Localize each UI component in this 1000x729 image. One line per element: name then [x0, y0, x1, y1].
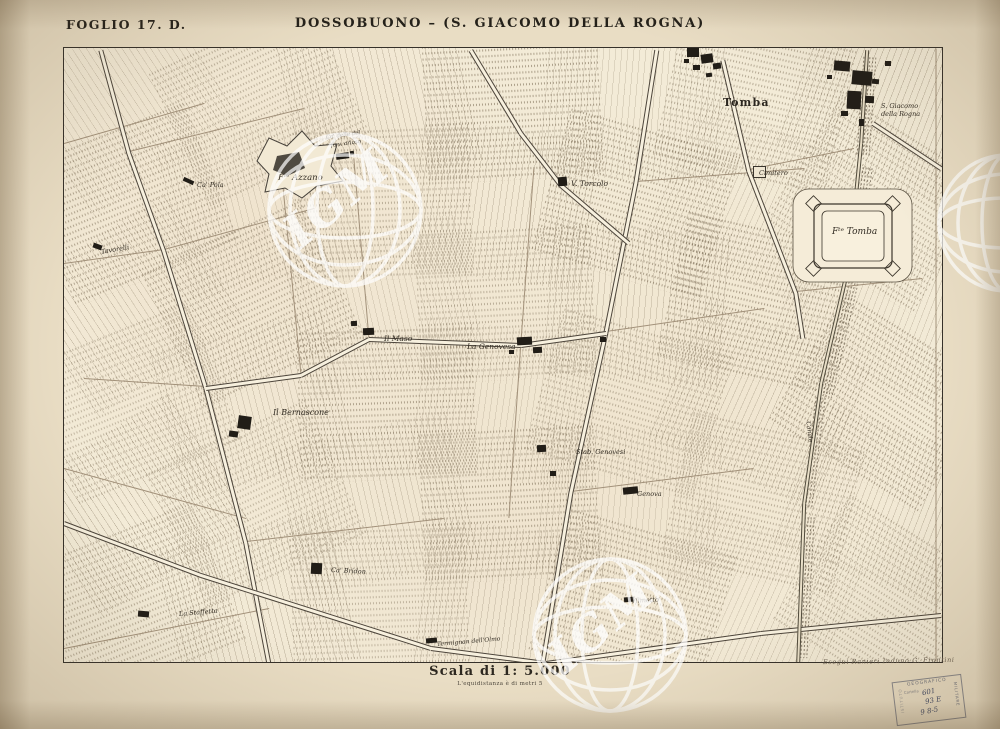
building-footprint [537, 445, 546, 452]
map-label: Il Bernascone [273, 408, 329, 417]
building-footprint [351, 321, 357, 326]
building-footprint [693, 65, 700, 70]
stamp-number-2: 93 E [924, 695, 941, 706]
map-label: Cimitero [759, 169, 788, 177]
building-footprint [834, 60, 851, 71]
map-title: DOSSOBUONO – (S. GIACOMO DELLA ROGNA) [0, 16, 1000, 31]
stamp-right-text: MILITARE [953, 681, 961, 706]
equidistance-note: L'equidistanza è di metri 5 [0, 681, 1000, 687]
building-footprint [426, 638, 437, 644]
building-footprint [851, 70, 872, 86]
building-footprint [600, 337, 606, 342]
map-label: Fᵗᵉ Tomba [832, 227, 877, 237]
building-footprint [350, 151, 355, 156]
scale-label: Scala di 1: 5.000 [0, 664, 1000, 679]
building-footprint [827, 75, 832, 79]
building-footprint [533, 347, 542, 353]
building-footprint [713, 62, 722, 69]
stamp-row-label: Cartella [904, 688, 919, 695]
stamp-number-3: 9 8-5 [920, 705, 939, 716]
building-footprint [847, 91, 862, 110]
map-label: Tomba [723, 96, 770, 109]
building-footprint [859, 119, 864, 126]
building-footprint [687, 48, 699, 57]
map-label: V. Torcolo [571, 179, 608, 188]
building-footprint [237, 415, 252, 430]
building-footprint [229, 430, 239, 437]
building-footprint [865, 96, 874, 103]
building-footprint [558, 177, 568, 187]
building-footprint [684, 59, 689, 63]
map-label: Ca' Pola [197, 181, 224, 189]
building-footprint [700, 53, 713, 64]
archive-stamp: GEOGRAFICO MILITARE ISTITUTO Cartella 60… [892, 674, 967, 726]
building-footprint [517, 337, 532, 346]
map-label: della Rogna [881, 110, 920, 118]
map-label: Vilmetto [631, 596, 659, 605]
map-label: S. Giacomo [881, 102, 918, 110]
building-footprint [841, 111, 848, 116]
building-footprint [706, 73, 712, 78]
building-footprint [550, 471, 556, 476]
map-sheet-page: FOGLIO 17. D. DOSSOBUONO – (S. GIACOMO D… [0, 0, 1000, 729]
map-label: Fᵗᵉ Azzano [278, 173, 323, 183]
map-label: Il Maso [384, 334, 412, 343]
map-label: La Genovesa [467, 342, 516, 351]
building-footprint [885, 61, 891, 66]
building-footprint [363, 328, 374, 336]
boundary-road-line [936, 49, 937, 662]
map-label: Genova [637, 490, 662, 498]
map-label: Stab. Genovesi [576, 448, 625, 456]
building-footprint [138, 611, 149, 618]
building-footprint [872, 79, 879, 85]
map-canvas: TombaS. Giacomodella RognaCimiteroFᵗᵉ To… [63, 47, 943, 663]
building-footprint [311, 563, 323, 575]
